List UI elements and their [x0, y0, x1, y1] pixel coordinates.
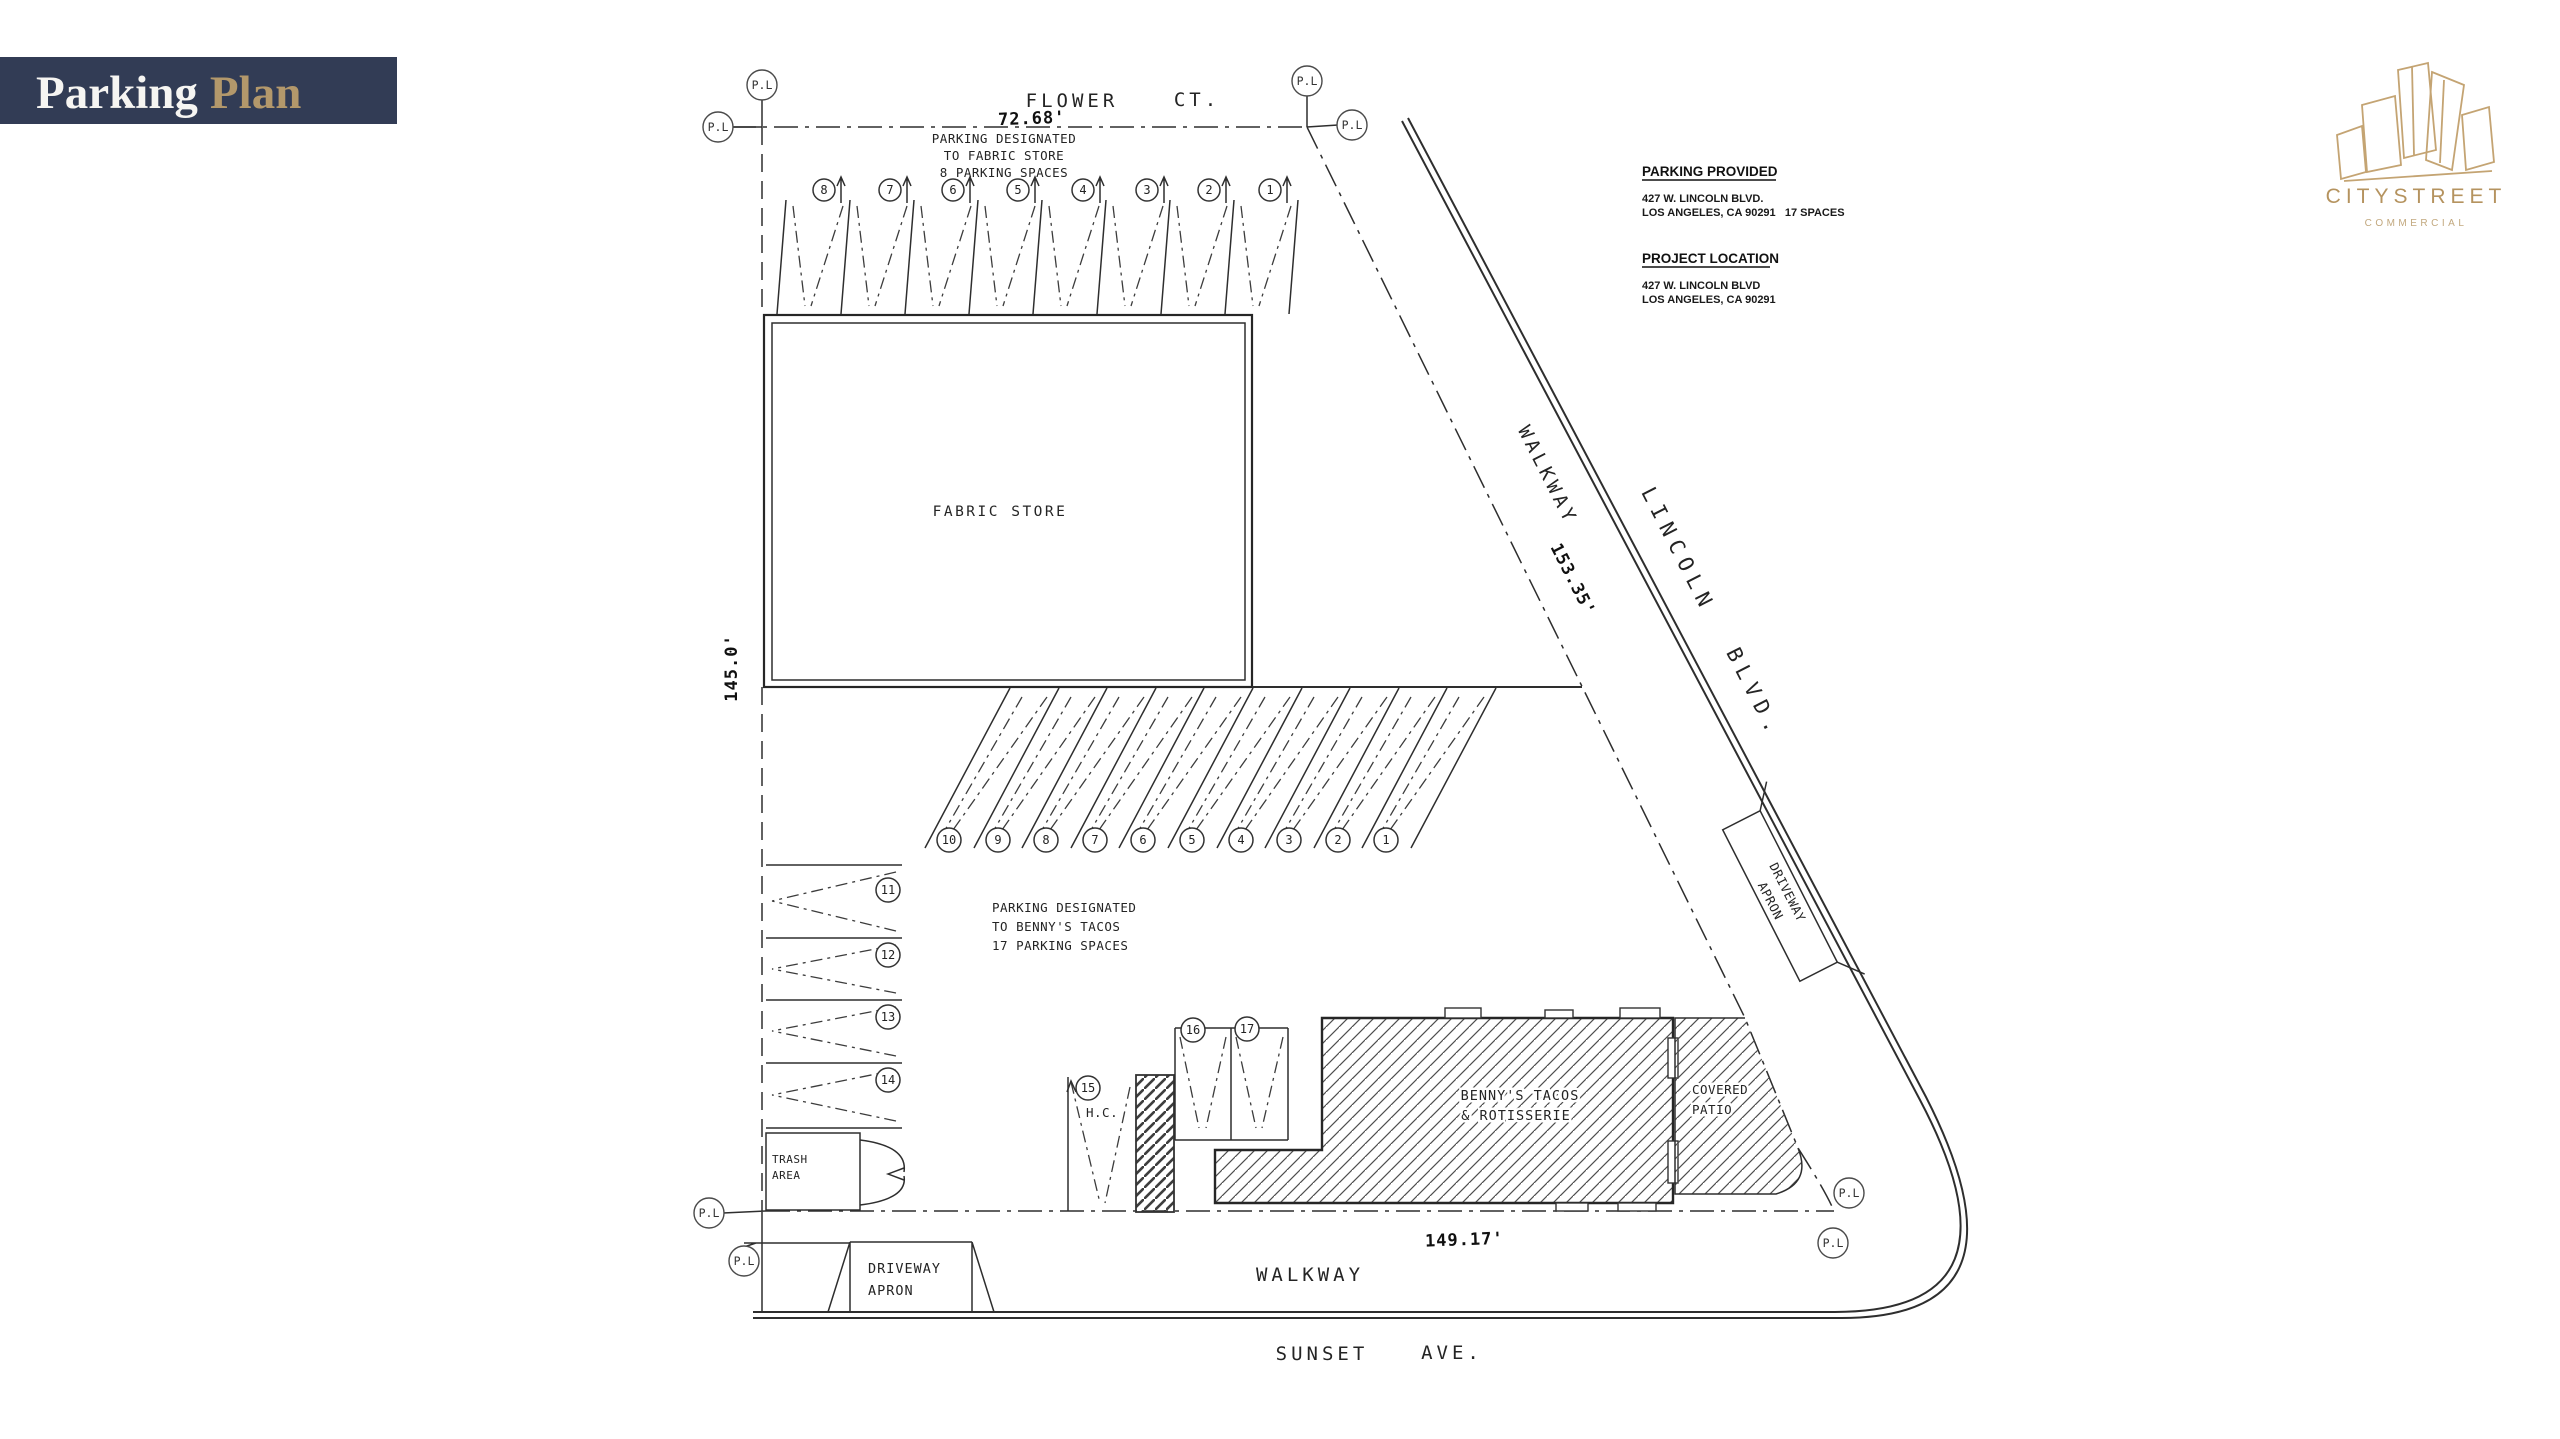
space-number-10: 10: [937, 828, 961, 852]
space-number-5: 5: [1180, 828, 1204, 852]
svg-text:P.L: P.L: [1823, 1236, 1844, 1250]
top-parking-row: 8 7 6 5 4 3 2 1: [777, 177, 1298, 314]
plan-notes: PARKING DESIGNATED TO FABRIC STORE 8 PAR…: [932, 131, 1137, 953]
bennys-building-outline: [1215, 1018, 1673, 1203]
space-number-8: 8: [1034, 828, 1058, 852]
parking-plan-drawing: ParkingPlan CITYSTREET COMMERCIAL PARKIN…: [0, 0, 2560, 1439]
trash-area: TRASH AREA: [766, 1133, 904, 1210]
space-number-2: 2: [1198, 179, 1220, 201]
page-title-secondary: Plan: [210, 67, 301, 119]
top-row-arrows: [837, 177, 1291, 203]
space-number-9: 9: [986, 828, 1010, 852]
svg-text:9: 9: [994, 833, 1001, 847]
svg-text:5: 5: [1188, 833, 1195, 847]
svg-text:P.L: P.L: [699, 1206, 720, 1220]
no-parking-hatch-strip: [1136, 1075, 1174, 1212]
svg-text:P.L: P.L: [1839, 1186, 1860, 1200]
dimension-top: 72.68': [998, 108, 1066, 130]
svg-text:4: 4: [1237, 833, 1244, 847]
covered-patio: COVERED PATIO: [1675, 1018, 1802, 1194]
space-number-15: 15: [1076, 1076, 1100, 1100]
svg-text:17: 17: [1240, 1022, 1254, 1036]
dimension-left: 145.0': [722, 634, 742, 701]
left-parking-column: 11 12 13 14: [766, 865, 902, 1128]
project-location-heading: PROJECT LOCATION: [1642, 251, 1779, 266]
fabric-store-label: FABRIC STORE: [933, 504, 1068, 520]
space-number-12: 12: [876, 943, 900, 967]
svg-text:12: 12: [881, 948, 895, 962]
svg-text:8: 8: [1042, 833, 1049, 847]
property-line-marker: P.L: [729, 1246, 759, 1276]
svg-text:7: 7: [886, 183, 893, 197]
handicap-label: H.C.: [1086, 1105, 1118, 1120]
walkway-diagonal-label: WALKWAY: [1513, 422, 1582, 528]
trash-area-label-line2: AREA: [772, 1169, 801, 1182]
svg-text:P.L: P.L: [1342, 118, 1363, 132]
bennys-note-line2: TO BENNY'S TACOS: [992, 919, 1120, 934]
space-number-8: 8: [813, 179, 835, 201]
driveway-apron-bottom-label2: APRON: [868, 1283, 914, 1299]
svg-text:4: 4: [1079, 183, 1086, 197]
spaces-16-17-frame: [1175, 1028, 1288, 1140]
space-number-11: 11: [876, 878, 900, 902]
svg-text:3: 3: [1143, 183, 1150, 197]
space-number-13: 13: [876, 1005, 900, 1029]
property-line-marker: P.L: [1337, 110, 1367, 140]
middle-row-dividers: [925, 688, 1496, 848]
svg-text:P.L: P.L: [734, 1254, 755, 1268]
fabric-note-line1: PARKING DESIGNATED: [932, 131, 1076, 146]
citystreet-logo: CITYSTREET COMMERCIAL: [2326, 63, 2507, 229]
slide: ParkingPlan CITYSTREET COMMERCIAL PARKIN…: [0, 0, 2560, 1439]
space-number-4: 4: [1229, 828, 1253, 852]
trash-area-doors: [860, 1140, 904, 1205]
patio-label-line2: PATIO: [1692, 1102, 1732, 1117]
property-line-marker: P.L: [703, 112, 733, 142]
space-number-1: 1: [1374, 828, 1398, 852]
svg-text:P.L: P.L: [708, 120, 729, 134]
space-number-14: 14: [876, 1068, 900, 1092]
svg-text:2: 2: [1334, 833, 1341, 847]
svg-text:7: 7: [1091, 833, 1098, 847]
driveway-apron-bottom-label1: DRIVEWAY: [868, 1261, 941, 1277]
dimension-diagonal: 153.35': [1546, 540, 1600, 619]
property-line-marker: P.L: [1818, 1228, 1848, 1258]
patio-label-line1: COVERED: [1692, 1082, 1748, 1097]
bennys-label-line1: BENNY'S TACOS: [1461, 1088, 1580, 1104]
space-number-2: 2: [1326, 828, 1350, 852]
bennys-note-line1: PARKING DESIGNATED: [992, 900, 1136, 915]
fabric-note-line2: TO FABRIC STORE: [944, 148, 1064, 163]
street-label-flower-suffix: CT.: [1174, 89, 1220, 111]
svg-text:6: 6: [1139, 833, 1146, 847]
top-row-dividers: [777, 200, 1298, 314]
title-banner: ParkingPlan: [0, 57, 397, 124]
parking-provided-address: 427 W. LINCOLN BLVD.: [1642, 193, 1763, 205]
street-label-sunset: SUNSET: [1276, 1343, 1369, 1365]
space-number-5: 5: [1007, 179, 1029, 201]
info-panel: PARKING PROVIDED 427 W. LINCOLN BLVD. LO…: [1642, 164, 1845, 306]
svg-text:2: 2: [1205, 183, 1212, 197]
svg-text:6: 6: [949, 183, 956, 197]
page-title-primary: Parking: [36, 67, 198, 119]
svg-text:P.L: P.L: [752, 78, 773, 92]
logo-name: CITYSTREET: [2326, 185, 2507, 208]
svg-text:11: 11: [881, 883, 895, 897]
space-number-6: 6: [1131, 828, 1155, 852]
dimension-bottom: 149.17': [1425, 1229, 1504, 1252]
svg-text:13: 13: [881, 1010, 895, 1024]
space-number-3: 3: [1136, 179, 1158, 201]
fabric-store-building: FABRIC STORE: [764, 315, 1252, 687]
project-location-address: 427 W. LINCOLN BLVD: [1642, 280, 1760, 292]
bennys-building: BENNY'S TACOS & ROTISSERIE: [1215, 1008, 1678, 1211]
bennys-note-line3: 17 PARKING SPACES: [992, 938, 1128, 953]
space-number-3: 3: [1277, 828, 1301, 852]
street-label-sunset-suffix: AVE.: [1421, 1342, 1483, 1364]
space-number-4: 4: [1072, 179, 1094, 201]
svg-text:3: 3: [1285, 833, 1292, 847]
property-line-marker: P.L: [1834, 1178, 1864, 1208]
svg-text:1: 1: [1266, 183, 1273, 197]
property-line-marker: P.L: [747, 70, 777, 100]
space-number-7: 7: [1083, 828, 1107, 852]
space-number-7: 7: [879, 179, 901, 201]
svg-text:14: 14: [881, 1073, 895, 1087]
parking-provided-heading: PARKING PROVIDED: [1642, 164, 1778, 179]
property-line-marker: P.L: [1292, 66, 1322, 96]
driveway-apron-bottom: DRIVEWAY APRON: [828, 1242, 994, 1312]
bennys-label-line2: & ROTISSERIE: [1461, 1108, 1571, 1124]
logo-tagline: COMMERCIAL: [2365, 218, 2468, 229]
page-title: ParkingPlan: [36, 67, 301, 119]
svg-text:15: 15: [1081, 1081, 1095, 1095]
project-location-city: LOS ANGELES, CA 90291: [1642, 294, 1776, 306]
space-number-6: 6: [942, 179, 964, 201]
svg-text:8: 8: [820, 183, 827, 197]
citystreet-logo-icon: [2337, 63, 2494, 181]
svg-text:P.L: P.L: [1297, 74, 1318, 88]
fabric-note-line3: 8 PARKING SPACES: [940, 165, 1068, 180]
svg-text:16: 16: [1186, 1023, 1200, 1037]
svg-text:10: 10: [942, 833, 956, 847]
driveway-apron-right: DRIVEWAY APRON: [1712, 782, 1864, 1002]
walkway-bottom-label: WALKWAY: [1256, 1264, 1364, 1286]
space-number-1: 1: [1259, 179, 1281, 201]
space-number-17: 17: [1235, 1017, 1259, 1041]
parking-provided-city: LOS ANGELES, CA 90291 17 SPACES: [1642, 207, 1845, 219]
svg-text:5: 5: [1014, 183, 1021, 197]
property-line-marker: P.L: [694, 1198, 724, 1228]
svg-text:1: 1: [1382, 833, 1389, 847]
space-number-16: 16: [1181, 1018, 1205, 1042]
trash-area-label-line1: TRASH: [772, 1153, 808, 1166]
middle-parking-row: 10 9 8 7 6 5 4 3 2 1: [925, 687, 1582, 852]
street-label-lincoln: LINCOLN: [1636, 483, 1720, 616]
